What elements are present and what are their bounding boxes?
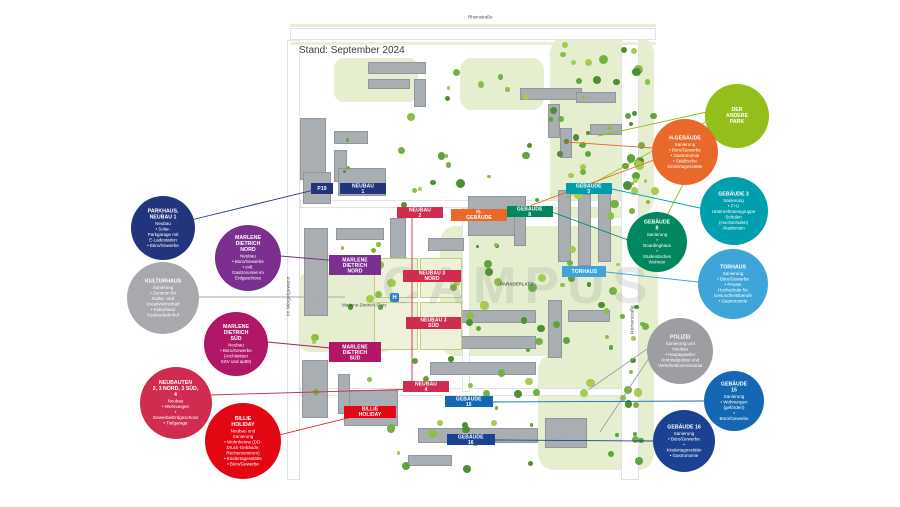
tree [576, 78, 582, 84]
bubble-kulturhaus: KULTURHAUSSanierung• Zentrum für Kultur-… [127, 262, 199, 334]
tree [527, 143, 532, 148]
bubble-line: • Gastronomie [667, 153, 702, 158]
bubble-line: • Solar-Parkgarage mit E-Ladestation [147, 226, 179, 242]
tree [438, 152, 446, 160]
bubble-title: GEBÄUDE 16 [666, 424, 701, 430]
tree [645, 79, 651, 85]
tree [560, 52, 566, 58]
tree [346, 166, 350, 170]
bubble-line: Sanierung [666, 431, 701, 436]
map-building [598, 190, 611, 262]
bubble-title: MARLENE DIETRICH NORD [232, 235, 265, 253]
tree [568, 173, 574, 179]
bubble-line: • F+U Unternehmensgruppe [712, 204, 756, 215]
tree [313, 389, 319, 395]
tree [630, 358, 636, 364]
street [287, 40, 300, 480]
tree [620, 395, 626, 401]
bubble-line: • Büro/Gewerbe [667, 147, 702, 152]
tree [367, 377, 372, 382]
tree [580, 142, 586, 148]
tree [537, 325, 545, 333]
map-chip-label: GEBÄUDE 16 [458, 434, 484, 445]
bubble-gebaeude-16: GEBÄUDE 16Sanierung• Büro/Gewerbe• Kinde… [653, 410, 715, 472]
bubble-title: KULTURHAUS [145, 278, 181, 284]
tree [580, 389, 588, 397]
tree [526, 348, 530, 352]
tree [525, 378, 533, 386]
bubble-line: • Tiefgarage [153, 421, 199, 426]
tree [633, 178, 638, 183]
map-chip-neubau-3-nord: NEUBAU 3 NORD [403, 270, 461, 282]
tree [498, 369, 506, 377]
tree [528, 461, 533, 466]
map-chip-gebaeude-15: GEBÄUDE 15 [445, 396, 493, 407]
street-label-top: Rheinstraße [468, 12, 517, 22]
bubble-line: • Städtische Kindertagesstätte [667, 158, 702, 169]
tree [387, 424, 396, 433]
bubble-line: • Kindertagesstätte [224, 456, 262, 461]
bubble-title: NEUBAUTEN 2, 3 NORD, 3 SÜD, 4 [153, 380, 199, 398]
tree [599, 55, 608, 64]
tree [609, 345, 614, 350]
tree [625, 113, 631, 119]
tree [412, 358, 419, 365]
tree [412, 188, 417, 193]
bubble-title: GEBÄUDE 15 [719, 381, 749, 393]
bubble-line: • Kindertagesstätte [666, 442, 701, 453]
bubble-line: • Büro/Gewerbe [719, 410, 749, 421]
tree [549, 117, 554, 122]
bubble-line: • Büro/Gewerbe [147, 243, 179, 248]
tree [462, 422, 468, 428]
bubble-gebaeude-3: GEBÄUDE 3Sanierung• F+U Unternehmensgrup… [700, 177, 768, 245]
map-building [545, 418, 587, 448]
tree [573, 134, 579, 140]
map-chip-gebaeude-16: GEBÄUDE 16 [447, 434, 495, 445]
tree [622, 163, 629, 170]
tree [613, 79, 619, 85]
tree [586, 379, 594, 387]
bubble-line: • Wohnungen (gefördert) [719, 399, 749, 410]
tree [593, 76, 601, 84]
tree [468, 383, 473, 388]
bubble-title: TORHAUS [714, 264, 752, 270]
map-chip-label: NEUBAU 1 [352, 183, 375, 194]
map-building [368, 79, 410, 89]
map-date-stamp: Stand: September 2024 [299, 40, 405, 58]
tree [631, 336, 636, 341]
map-chip-marlene-dietrich-sued: MARLENE DIETRICH SÜD [329, 342, 381, 362]
platz-label: Marlene-Dietrich-Platz [342, 300, 431, 310]
bubble-marlene-dietrich-nord: MARLENE DIETRICH NORDNeubau• Büro/Gewerb… [215, 225, 281, 291]
bubble-line: • Gastronomie [666, 453, 701, 458]
map-chip-gebaeude-8: GEBÄUDE 8 [507, 206, 553, 217]
map-date-text: Stand: September 2024 [299, 45, 405, 56]
map-chip-neubau-4: NEUBAU 4 [403, 381, 449, 392]
tree [558, 116, 563, 121]
park-area [460, 58, 544, 110]
tree [627, 154, 636, 163]
bubble-line: • Gewerbe/Erdgeschoss [153, 410, 199, 421]
bubble-title: MARLENE DIETRICH SÜD [220, 323, 252, 341]
map-building [414, 79, 426, 107]
bubble-gebaeude-15: GEBÄUDE 15Sanierung• Wohnungen (geförder… [704, 371, 764, 431]
tree [563, 337, 570, 344]
map-building [368, 62, 426, 74]
map-building [336, 228, 384, 240]
bubble-gebaeude-8: GEBÄUDE 8Sanierung• Boardinghaus• Studen… [627, 212, 687, 272]
bubble-line: Sanierung [667, 142, 702, 147]
bubble-line: • Studentisches Wohnen [642, 249, 672, 265]
bubble-line: Neubau und Sanierung [224, 428, 262, 439]
map-chip-gebaeude-3: GEBÄUDE 3 [566, 183, 612, 194]
tree [607, 212, 614, 219]
tree [341, 246, 345, 250]
tree [437, 420, 443, 426]
tree [514, 390, 522, 398]
bubble-title: DER ANDERE PARK [721, 106, 753, 124]
map-chip-label: NEUBAU 3 NORD [418, 271, 447, 282]
map-chip-label: GEBÄUDE 3 [576, 183, 602, 194]
tree [456, 179, 465, 188]
map-building [334, 131, 368, 144]
bubble-line: Akademien [712, 225, 756, 230]
bubble-line: • Private Hochschule für Gesundheitsberu… [714, 282, 752, 298]
tree [463, 465, 471, 473]
street-verge [290, 24, 656, 27]
bubble-title: PARKHAUS, NEUBAU 1 [147, 208, 179, 220]
map-chip-label: TORHAUS [571, 269, 596, 275]
tree [376, 242, 381, 247]
bubble-neubauten: NEUBAUTEN 2, 3 NORD, 3 SÜD, 4Neubau• Woh… [140, 367, 212, 439]
tree [550, 107, 557, 114]
map-chip-billie-holiday: BILLIE HOLIDAY [344, 406, 396, 418]
tree [447, 86, 451, 90]
tree [557, 151, 562, 156]
bubble-title: BILLIE HOLIDAY [224, 415, 262, 427]
tree [530, 423, 534, 427]
bubble-line: • Wohnheime (DD-Druck-Gebäude; Rechenzen… [224, 439, 262, 455]
street [290, 28, 656, 40]
map-building [408, 455, 452, 466]
map-chip-p19: P19 [311, 183, 333, 194]
tree [430, 180, 436, 186]
bubble-line: Neubau [147, 221, 179, 226]
bubble-line: • Büro/Gewerbe [224, 461, 262, 466]
street-label-right: Römerstraße [612, 318, 652, 328]
tree [407, 113, 415, 121]
bubble-line: • Gastronomie [714, 298, 752, 303]
tree [522, 152, 529, 159]
tree [533, 389, 539, 395]
map-chip-label: GEBÄUDE 8 [517, 206, 543, 217]
tree [650, 113, 657, 120]
map-building [430, 362, 536, 375]
map-chip-neubau-3-sued: NEUBAU 3 SÜD [406, 317, 461, 329]
tree [632, 68, 641, 77]
tree [651, 187, 659, 195]
bubble-h-gebaeude: H-GEBÄUDESanierung• Büro/Gewerbe• Gastro… [652, 119, 718, 185]
bubble-title: POLIZEI [658, 334, 702, 340]
map-chip-label: BILLIE HOLIDAY [357, 407, 383, 418]
map-chip-h-gebaeude: H-GEBÄUDE [451, 209, 507, 221]
bubble-billie-holiday: BILLIE HOLIDAYNeubau und Sanierung• Wohn… [205, 403, 281, 479]
bubble-line: Sanierung [719, 394, 749, 399]
tree [418, 187, 422, 191]
bubble-line: • Büro/Gewerbe [666, 436, 701, 441]
street [300, 200, 622, 208]
tree [644, 179, 648, 183]
map-building [520, 88, 582, 100]
bubble-parkhaus-neubau-1: PARKHAUS, NEUBAU 1Neubau• Solar-Parkgara… [131, 196, 195, 260]
tree [487, 175, 491, 179]
bubble-title: GEBÄUDE 3 [712, 191, 756, 197]
tree [505, 87, 510, 92]
tree [629, 370, 633, 374]
tree [564, 139, 569, 144]
bubble-line: (Architekten SSV und ap88) [220, 354, 252, 365]
tree [562, 42, 568, 48]
map-chip-neubau-2: NEUBAU 2 [397, 207, 443, 218]
tree [398, 147, 405, 154]
bubble-title: GEBÄUDE 8 [642, 219, 672, 231]
tree [491, 420, 498, 427]
map-chip-label: GEBÄUDE 15 [456, 396, 482, 407]
tree [634, 388, 643, 397]
tree [448, 356, 454, 362]
bubble-title: H-GEBÄUDE [667, 135, 702, 141]
bubble-torhaus: TORHAUSSanierung• Büro/Gewerbe• Private … [698, 249, 768, 319]
plaza-label: PARADEPLATZ [500, 279, 566, 289]
tree [632, 436, 639, 443]
tree [633, 402, 639, 408]
map-building [590, 124, 622, 135]
transit-stop-icon: H [390, 293, 399, 302]
map-chip-label: NEUBAU 2 [409, 207, 432, 218]
map-chip-label: NEUBAU 3 SÜD [420, 318, 448, 329]
tree [569, 246, 576, 253]
map-building [428, 238, 464, 251]
map-chip-label: MARLENE DIETRICH SÜD [342, 344, 368, 361]
tree [445, 154, 448, 157]
tree [521, 317, 528, 324]
map-chip-label: P19 [317, 186, 328, 192]
tree [495, 406, 499, 410]
bubble-line: • Zentrum für Kultur- und Kreativwirtsch… [145, 291, 181, 307]
tree [635, 161, 644, 170]
bubble-marlene-dietrich-sued: MARLENE DIETRICH SÜDNeubau• Büro/Gewerbe… [204, 312, 268, 376]
tree [397, 451, 400, 454]
map-chip-marlene-dietrich-nord: MARLENE DIETRICH NORD [329, 255, 381, 275]
bubble-line: • Hauptquartier Kriminalpolizei und Verk… [658, 352, 702, 368]
bubble-line: • Boardinghaus [642, 238, 672, 249]
tree [629, 208, 635, 214]
tree [646, 200, 650, 204]
street-label-left: Im Mörgelgewann [268, 300, 308, 310]
tree [638, 142, 645, 149]
site-plan-infographic: CAMPUS Stand: September 2024 Rheinstraße… [0, 0, 900, 507]
tree [629, 122, 634, 127]
bubble-line: Schulen (Hochschulen) [712, 215, 756, 226]
tree [446, 162, 452, 168]
tree [371, 248, 376, 253]
map-chip-label: MARLENE DIETRICH NORD [342, 257, 368, 274]
map-chip-label: NEUBAU 4 [415, 381, 438, 392]
map-chip-neubau-1: NEUBAU 1 [340, 183, 386, 194]
map-building [300, 118, 326, 180]
map-chip-torhaus: TORHAUS [562, 266, 606, 277]
bubble-line: Sanierung und Neubau [658, 341, 702, 352]
bubble-polizei: POLIZEISanierung und Neubau• Hauptquarti… [647, 318, 713, 384]
bubble-line: • Kulturhaus Karlstorbahnhof [145, 307, 181, 318]
bubble-line: • evtl. Gastronomie im Erdgeschoss [232, 265, 265, 281]
tree [402, 462, 410, 470]
map-chip-label: H-GEBÄUDE [465, 210, 493, 221]
tree [445, 96, 450, 101]
tree [343, 170, 346, 173]
